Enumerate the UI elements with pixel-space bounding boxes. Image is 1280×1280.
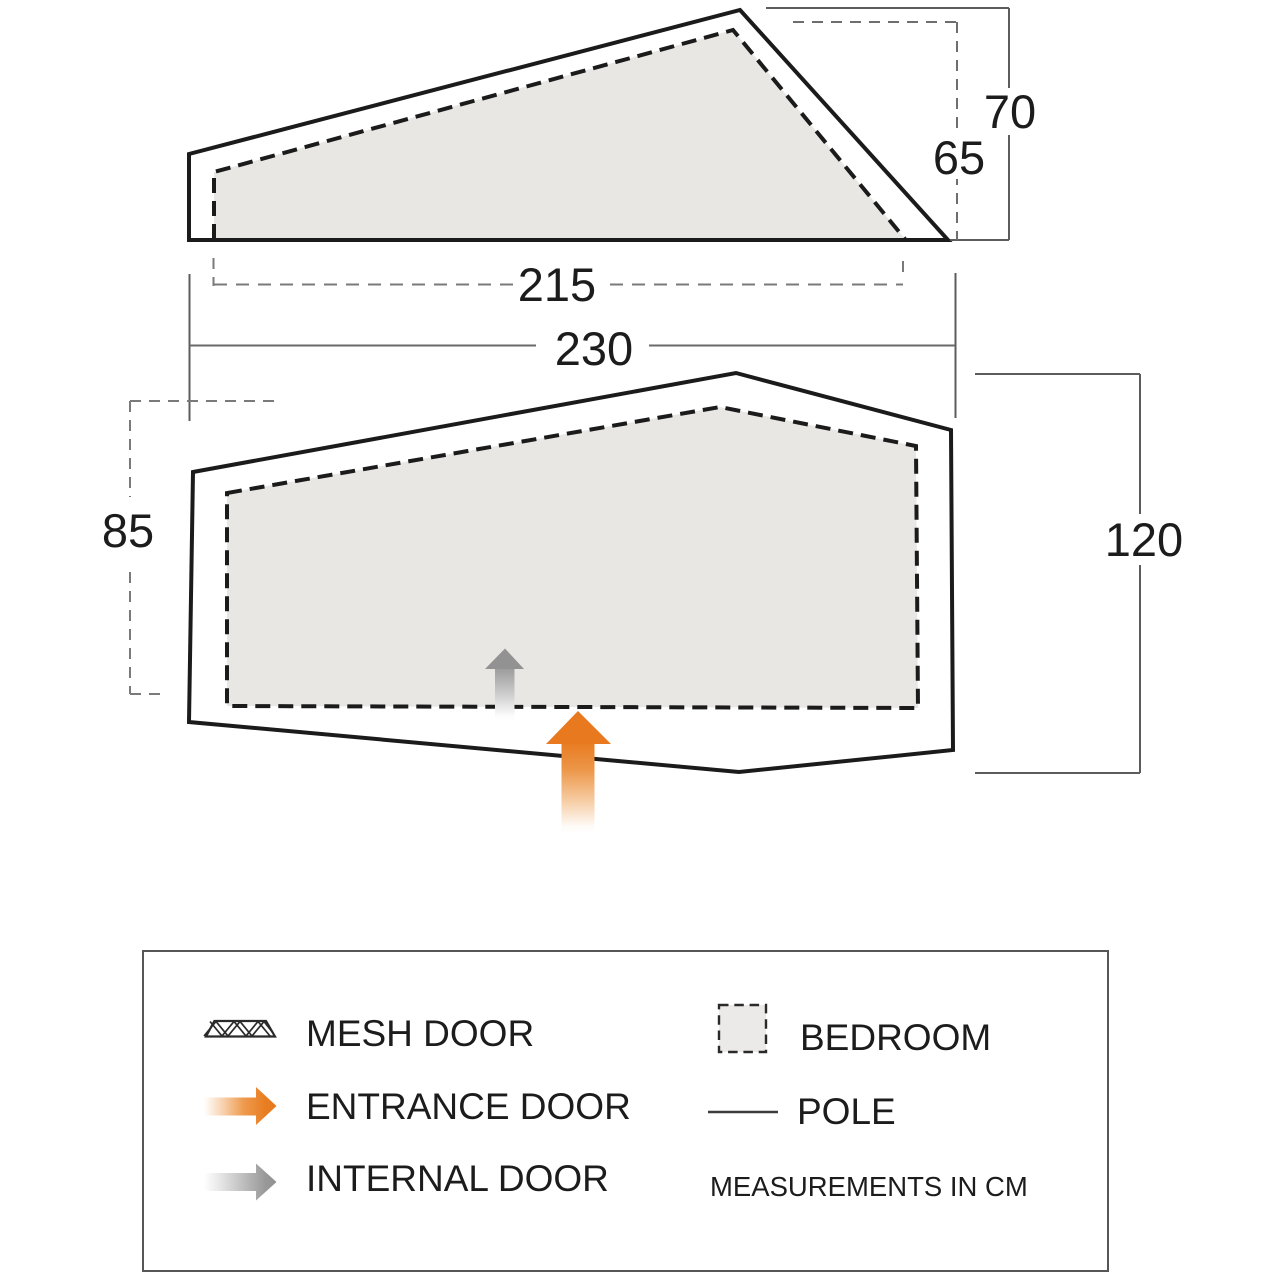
svg-text:85: 85 <box>102 504 154 557</box>
svg-text:215: 215 <box>518 258 596 311</box>
svg-text:MESH DOOR: MESH DOOR <box>306 1013 534 1054</box>
svg-text:POLE: POLE <box>797 1091 896 1132</box>
svg-text:230: 230 <box>555 322 633 375</box>
svg-text:120: 120 <box>1105 513 1183 566</box>
svg-text:65: 65 <box>933 131 985 184</box>
svg-text:70: 70 <box>984 85 1036 138</box>
svg-text:ENTRANCE DOOR: ENTRANCE DOOR <box>306 1086 631 1127</box>
svg-text:INTERNAL DOOR: INTERNAL DOOR <box>306 1158 609 1199</box>
svg-text:MEASUREMENTS IN CM: MEASUREMENTS IN CM <box>710 1171 1028 1202</box>
svg-text:BEDROOM: BEDROOM <box>800 1017 991 1058</box>
